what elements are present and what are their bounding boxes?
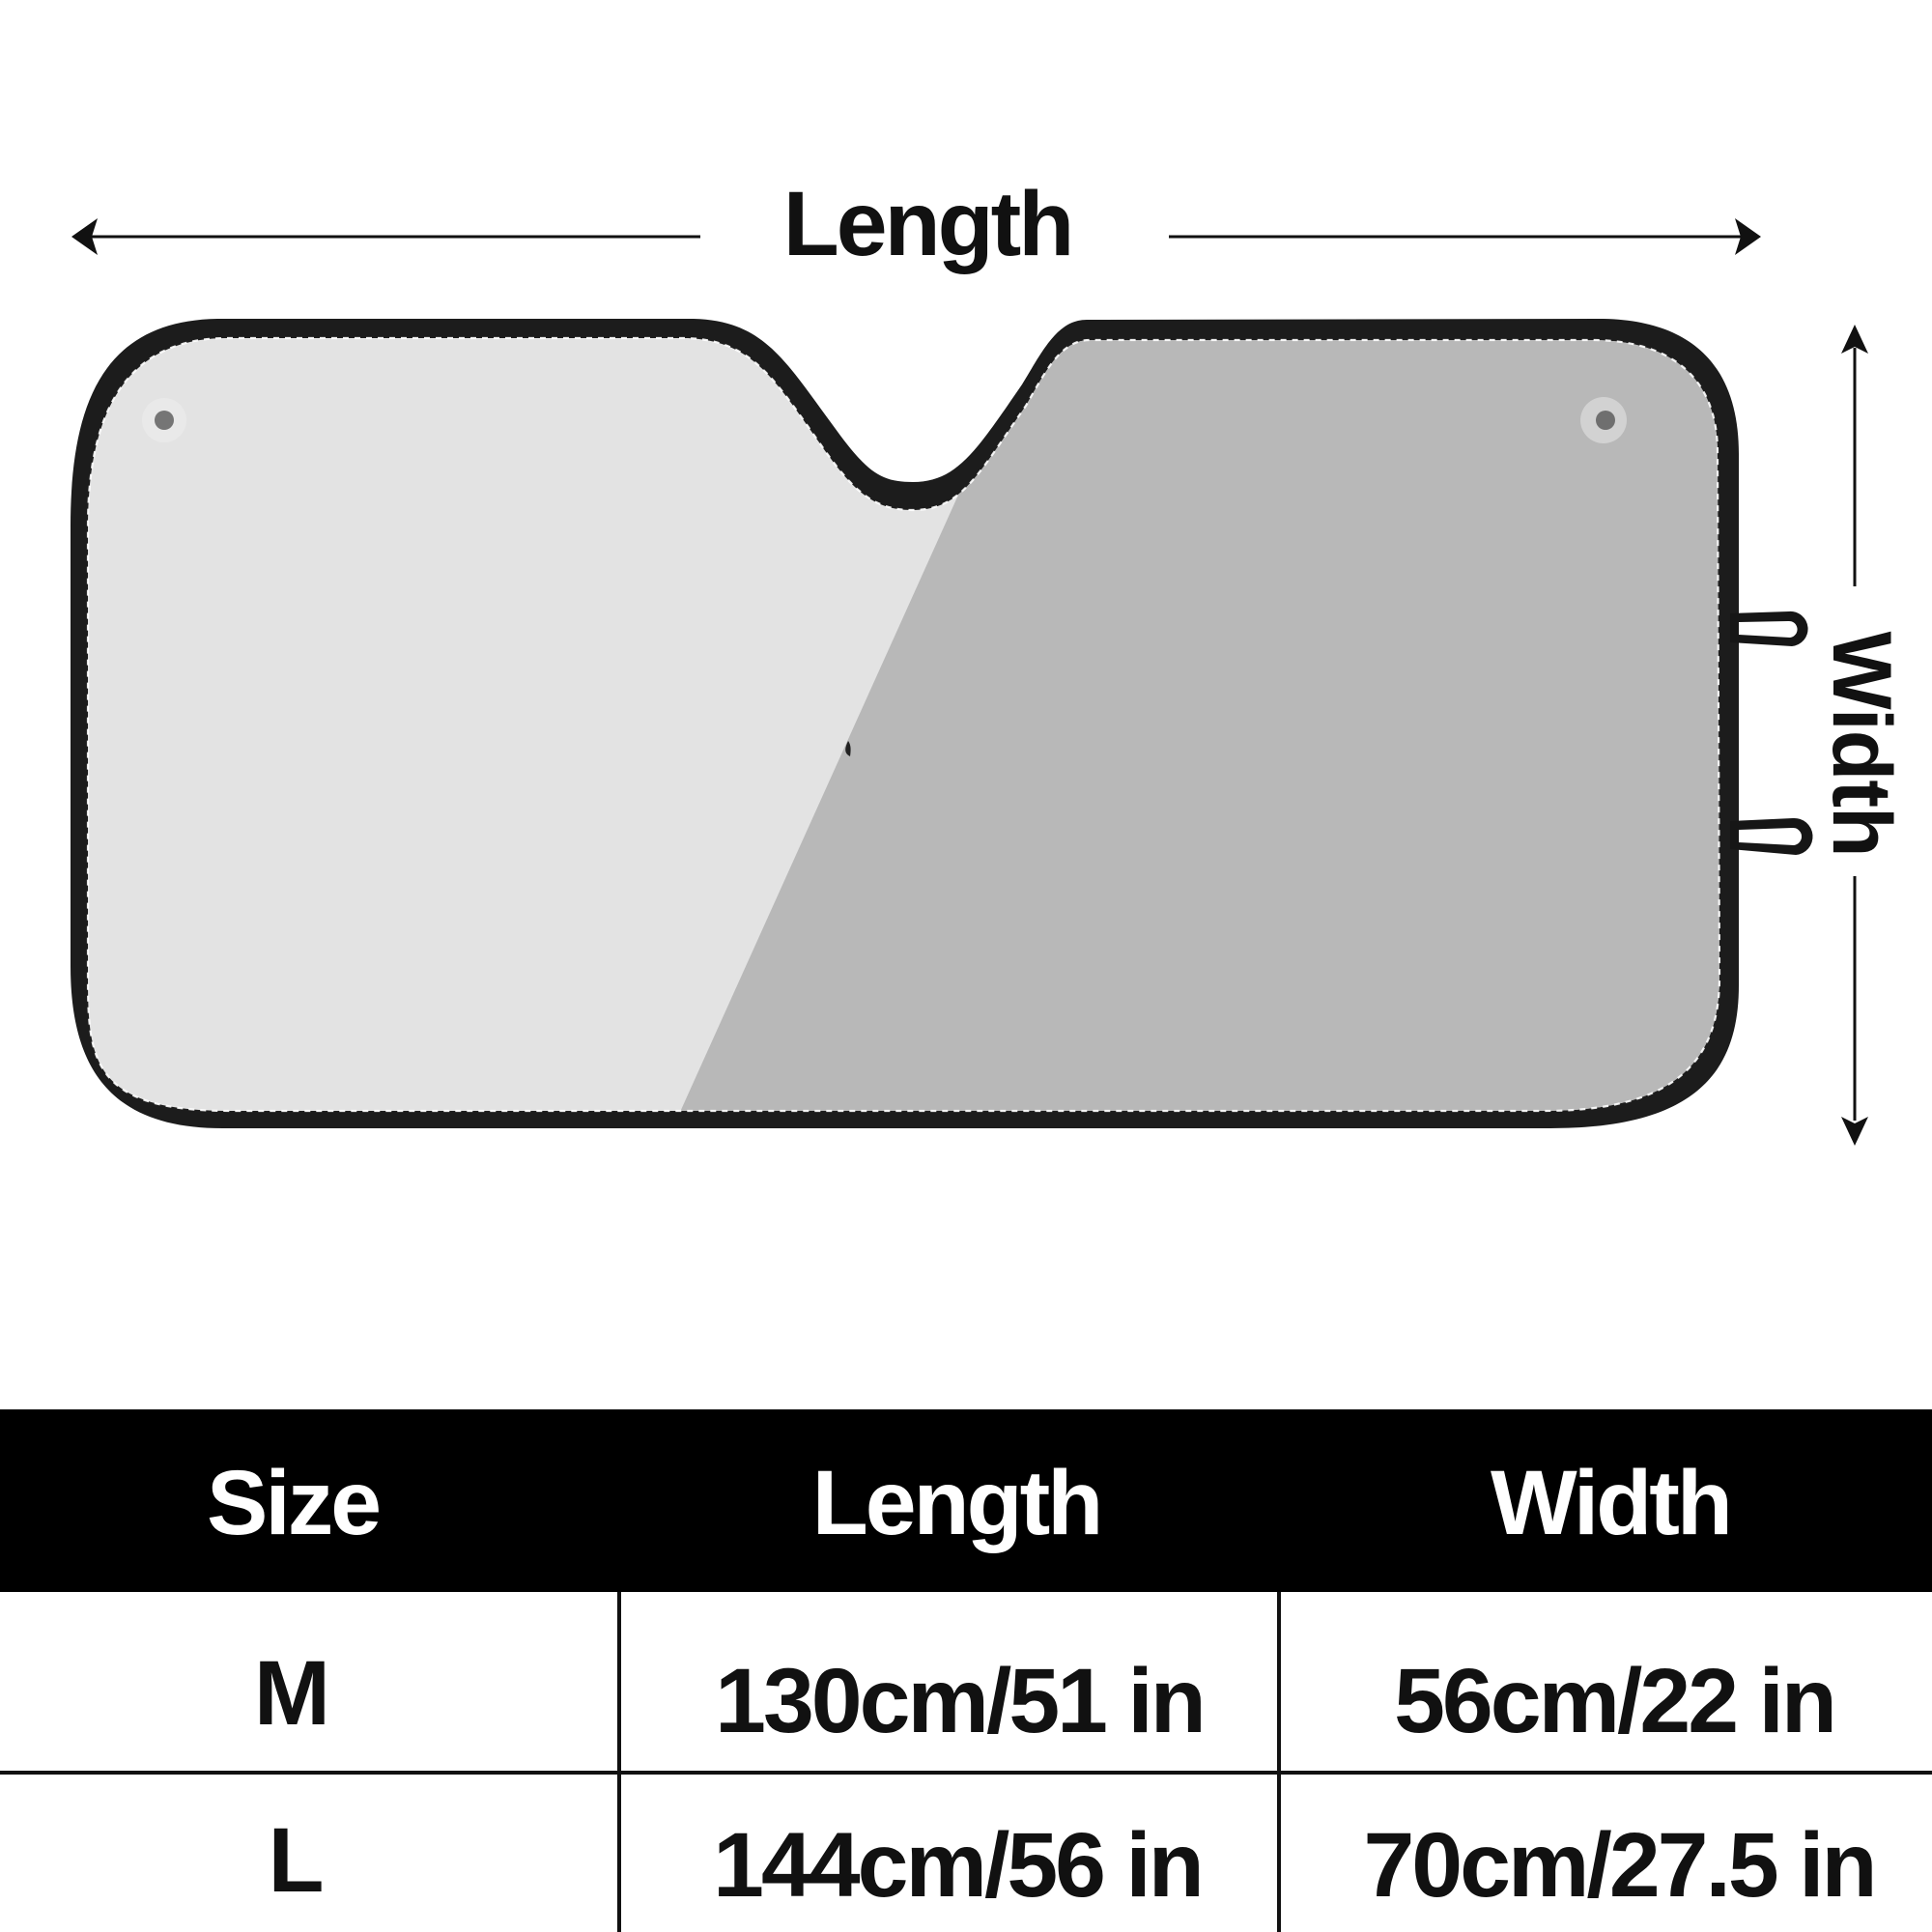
svg-text:Length: Length xyxy=(783,173,1072,275)
svg-text:M: M xyxy=(254,1642,327,1745)
svg-text:144cm/56 in: 144cm/56 in xyxy=(713,1814,1202,1917)
svg-text:56cm/22 in: 56cm/22 in xyxy=(1394,1650,1834,1752)
svg-text:Width: Width xyxy=(1491,1452,1730,1554)
svg-text:70cm/27.5 in: 70cm/27.5 in xyxy=(1363,1814,1874,1917)
svg-text:Width: Width xyxy=(1815,631,1908,856)
svg-text:L: L xyxy=(268,1809,322,1912)
svg-text:Length: Length xyxy=(812,1452,1101,1554)
svg-text:130cm/51 in: 130cm/51 in xyxy=(715,1650,1204,1752)
svg-text:Size: Size xyxy=(207,1452,379,1554)
